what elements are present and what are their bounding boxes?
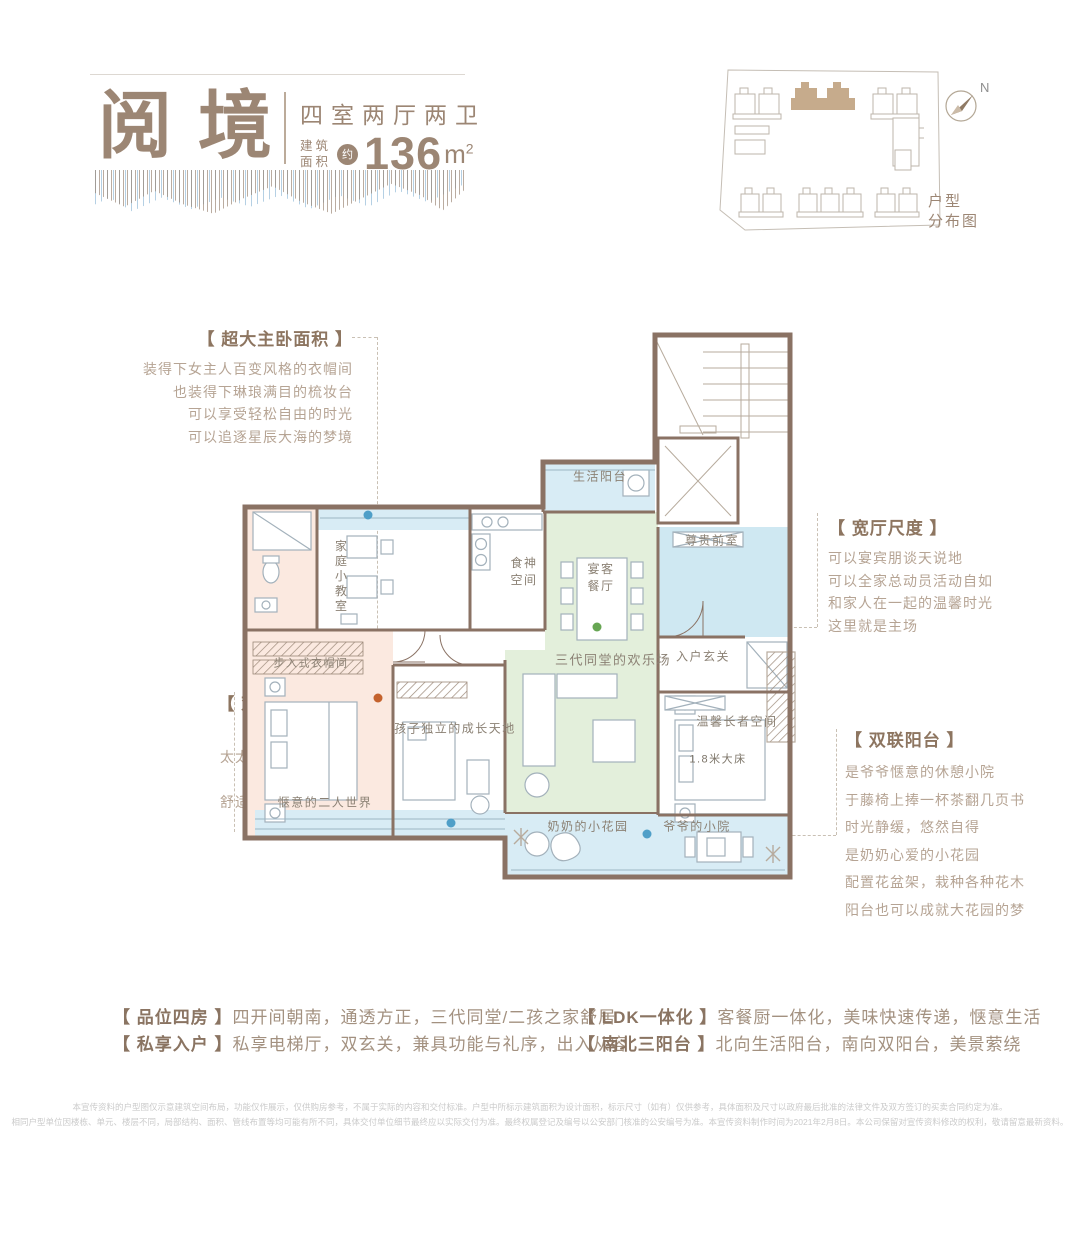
annotation-wide-hall: 【 宽厅尺度 】 可以宴宾朋谈天说地 可以全家总动员活动自如 和家人在一起的温馨… xyxy=(828,514,1043,637)
room-label-front-room: 尊贵前室 xyxy=(685,533,739,550)
dot-blue xyxy=(364,511,373,520)
annotation-twin-balcony: 【 双联阳台 】 是爷爷惬意的休憩小院 于藤椅上捧一杯茶翻几页书 时光静缓，悠然… xyxy=(845,726,1080,924)
annotation-line: 是奶奶心爱的小花园 xyxy=(845,842,1080,870)
annotation-line: 阳台也可以成就大花园的梦 xyxy=(845,897,1080,925)
stairs-icon xyxy=(655,338,790,438)
area-unit: m2 xyxy=(444,139,473,170)
annotation-line: 是爷爷惬意的休憩小院 xyxy=(845,759,1080,787)
bay-window-south xyxy=(255,810,505,838)
approx-badge: 约 xyxy=(337,144,358,165)
feature-title: 【 LDK一体化 】 xyxy=(578,1008,717,1027)
annotation-line: 配置花盆架，栽种各种花木 xyxy=(845,869,1080,897)
room-label-dining: 宴客 餐厅 xyxy=(587,561,614,595)
annotation-line: 时光静缓，悠然自得 xyxy=(845,814,1080,842)
kids-wardrobe-hatch xyxy=(397,682,467,698)
feature-desc: 客餐厨一体化，美味快速传递，惬意生活 xyxy=(717,1008,1041,1027)
feature-desc: 北向生活阳台，南向双阳台，美景萦绕 xyxy=(715,1035,1021,1054)
dot-blue xyxy=(447,819,456,828)
annotation-line: 于藤椅上捧一杯茶翻几页书 xyxy=(845,787,1080,815)
title-divider xyxy=(284,92,286,164)
wave-decoration xyxy=(95,170,465,216)
room-label-elder: 温馨长者空间 xyxy=(696,714,777,731)
annotation-title: 【 双联阳台 】 xyxy=(845,726,1080,751)
annotation-line: 和家人在一起的温馨时光 xyxy=(828,592,1043,615)
feature-desc: 四开间朝南，通透方正，三代同堂/二孩之家舒居 xyxy=(232,1008,616,1027)
room-label-foyer: 入户玄关 xyxy=(676,649,730,666)
annotation-title: 【 宽厅尺度 】 xyxy=(828,514,1043,539)
area-prefix-bottom: 面积 xyxy=(300,154,331,170)
room-label-elder-bed: 1.8米大床 xyxy=(689,752,746,769)
room-label-life-balcony: 生活阳台 xyxy=(573,469,627,486)
disclaimer: 本宣传资料的户型图仅示意建筑空间布局，功能仅作展示，仅供购房参考，不属于实际的内… xyxy=(0,1100,1080,1130)
poster-page: 阅境 四室两厅两卫 建筑 面积 约 136 m2 xyxy=(0,0,1080,1235)
room-label-classroom: 家庭小教室 xyxy=(332,540,349,615)
feature-title: 【 南北三阳台 】 xyxy=(578,1035,715,1054)
compass-north-label: N xyxy=(980,80,989,95)
room-label-kids: 孩子独立的成长天地 xyxy=(394,721,516,738)
annotation-line: 这里就是主场 xyxy=(828,615,1043,638)
room-label-grandma-garden: 奶奶的小花园 xyxy=(547,819,628,836)
feature-title: 【 私享入户 】 xyxy=(113,1035,232,1054)
siteplan-building-highlight xyxy=(791,82,855,110)
connector-line xyxy=(836,729,837,835)
disclaimer-line: 相同户型单位因楼栋、单元、楼层不同，局部结构、面积、管线布置等均可能有所不同，具… xyxy=(0,1115,1080,1130)
area-prefix: 建筑 面积 xyxy=(300,138,331,170)
room-label-kitchen: 食神 空间 xyxy=(510,555,537,589)
room-label-closet: 步入式衣帽间 xyxy=(274,656,349,673)
layout-subtitle: 四室两厅两卫 xyxy=(300,96,486,130)
feature-desc: 私享电梯厅，双玄关，兼具功能与礼序，出入从容 xyxy=(232,1035,628,1054)
feature-row: 【 LDK一体化 】客餐厨一体化，美味快速传递，惬意生活 xyxy=(578,1003,1041,1028)
page-title: 阅境 xyxy=(98,84,298,168)
area-prefix-top: 建筑 xyxy=(300,138,331,154)
feature-row: 【 南北三阳台 】北向生活阳台，南向双阳台，美景萦绕 xyxy=(578,1030,1021,1055)
feature-row: 【 私享入户 】私享电梯厅，双玄关，兼具功能与礼序，出入从容 xyxy=(113,1030,628,1055)
room-label-master: 惬意的二人世界 xyxy=(278,795,373,812)
annotation-line: 可以全家总动员活动自如 xyxy=(828,570,1043,593)
disclaimer-line: 本宣传资料的户型图仅示意建筑空间布局，功能仅作展示，仅供购房参考，不属于实际的内… xyxy=(0,1100,1080,1115)
siteplan-caption: 户型 分布图 xyxy=(928,192,979,232)
annotation-line: 可以宴宾朋谈天说地 xyxy=(828,547,1043,570)
dot-orange xyxy=(374,694,383,703)
area-unit-letter: m xyxy=(444,139,466,169)
dot-green xyxy=(593,623,602,632)
area-unit-sup: 2 xyxy=(466,140,474,156)
room-label-grandpa-yard: 爷爷的小院 xyxy=(663,819,731,836)
feature-row: 【 品位四房 】四开间朝南，通透方正，三代同堂/二孩之家舒居 xyxy=(113,1003,616,1028)
feature-title: 【 品位四房 】 xyxy=(113,1008,232,1027)
compass-icon xyxy=(946,91,976,121)
dot-blue xyxy=(643,830,652,839)
room-label-living: 三代同堂的欢乐场 xyxy=(555,652,671,669)
walkin-closet-hatch xyxy=(253,642,363,656)
header-rule xyxy=(90,74,465,75)
